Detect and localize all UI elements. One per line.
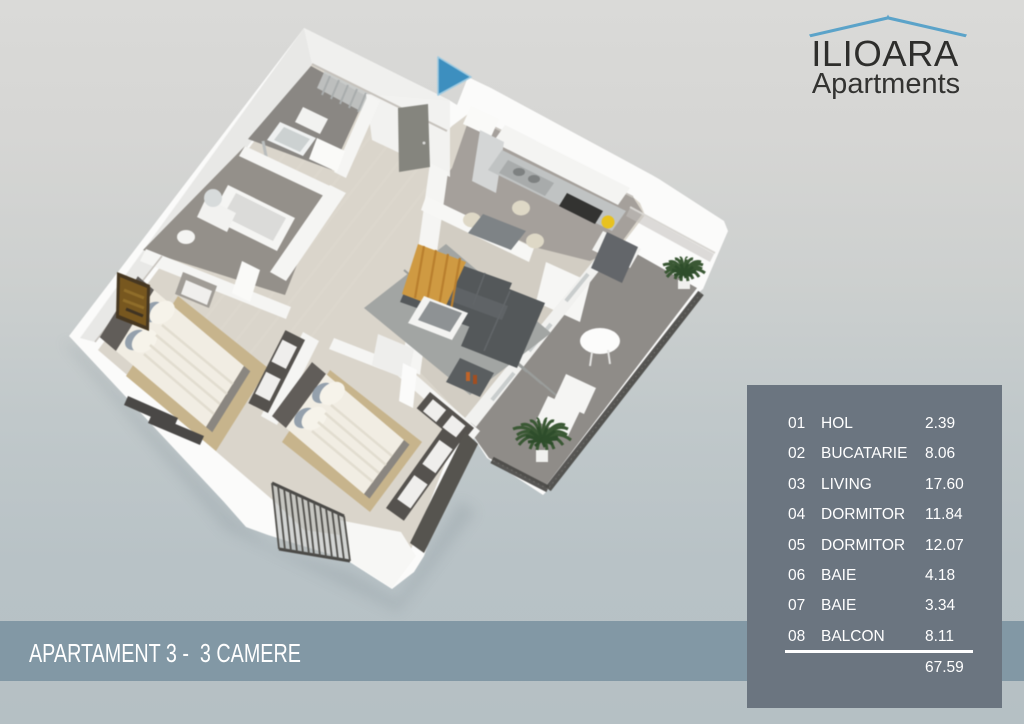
svg-text:Apartments: Apartments bbox=[812, 68, 960, 100]
